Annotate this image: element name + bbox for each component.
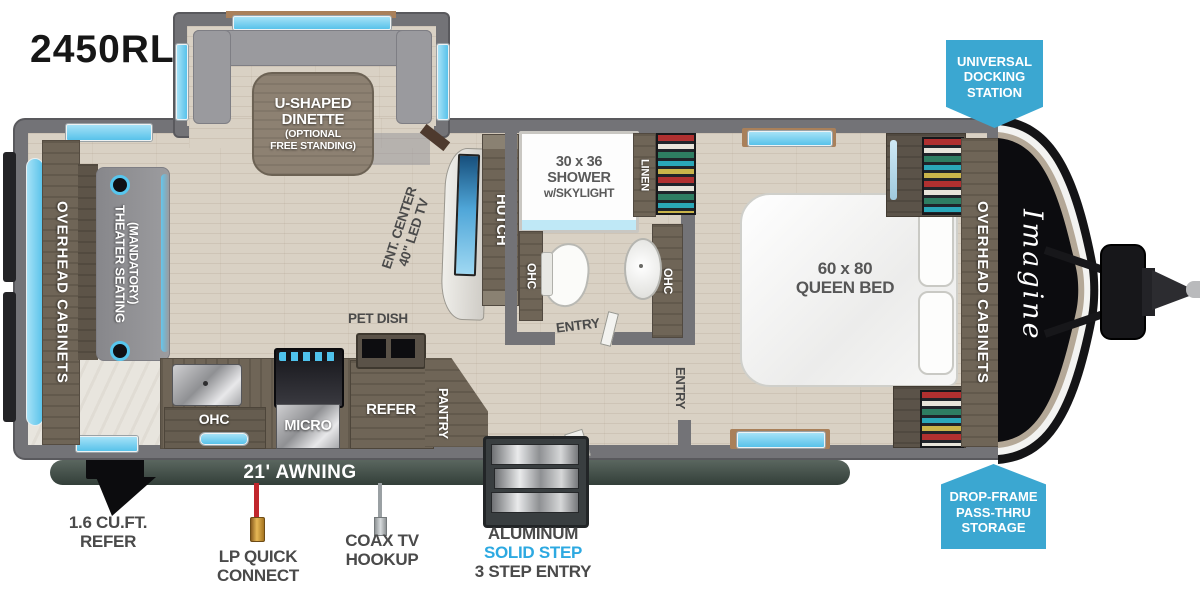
floorplan-canvas: 2450RL 21' AWNING 1.6 CU.FT. REFER LP QU… [0,0,1200,594]
steps-label: ALUMINUM SOLID STEP 3 STEP ENTRY [462,524,604,581]
propane-tank-icon [1101,245,1145,339]
brand-logo: Imagine [1014,200,1050,350]
entry-steps-icon [483,436,589,528]
